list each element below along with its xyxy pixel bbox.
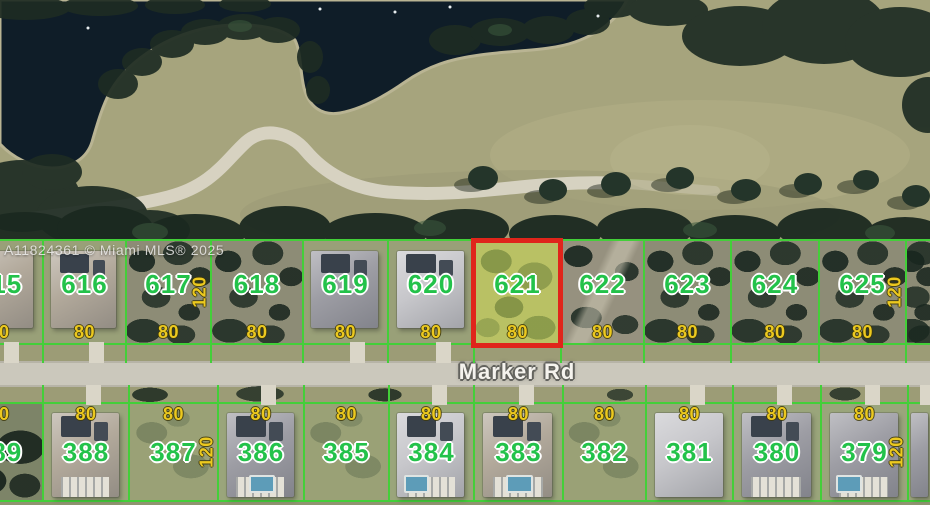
lot-number: 616	[44, 269, 125, 300]
lot-number: 386	[219, 437, 303, 468]
mls-watermark: A11824361 © Miami MLS® 2025	[4, 242, 224, 258]
lot-frontage: 80	[732, 322, 818, 343]
lot-number: 615	[0, 269, 42, 300]
lot-number: 388	[44, 437, 128, 468]
house	[911, 413, 928, 497]
lot-frontage: 80	[130, 404, 217, 425]
lot-number: 620	[389, 269, 473, 300]
driveway	[89, 342, 104, 363]
lot-frontage: 80	[389, 322, 473, 343]
lot-edge	[907, 404, 930, 500]
driveway	[261, 385, 276, 405]
aerial-map: Marker Rd 615806168061780120618806198062…	[0, 0, 930, 505]
lot-383: 38380	[473, 404, 562, 500]
lot-621: 62180	[473, 241, 560, 343]
lot-622: 62280	[560, 241, 643, 343]
lot-frontage: 80	[44, 404, 128, 425]
lot-depth: 120	[197, 436, 218, 468]
lot-frontage: 80	[219, 404, 303, 425]
driveway	[4, 342, 19, 363]
lot-frontage: 80	[734, 404, 820, 425]
lot-frontage: 80	[212, 322, 302, 343]
scenery-aerial	[0, 0, 930, 242]
lot-frontage: 80	[475, 404, 562, 425]
lot-number: 622	[562, 269, 643, 300]
lot-frontage: 80	[820, 322, 905, 343]
lot-number: 383	[475, 437, 562, 468]
lot-frontage: 80	[645, 322, 730, 343]
pool	[506, 475, 532, 493]
lot-619: 61980	[302, 241, 387, 343]
lot-number: 624	[732, 269, 818, 300]
lot-385: 38580	[303, 404, 388, 500]
road-name-label: Marker Rd	[104, 359, 930, 385]
lot-381: 38180	[645, 404, 732, 500]
pool	[404, 475, 429, 493]
lot-382: 38280	[562, 404, 645, 500]
lot-frontage: 80	[564, 404, 645, 425]
lot-number: 385	[305, 437, 388, 468]
lanai	[751, 477, 801, 497]
lot-624: 62480	[730, 241, 818, 343]
lot-number: 380	[734, 437, 820, 468]
lot-frontage: 80	[44, 322, 125, 343]
lot-379: 37980120	[820, 404, 907, 500]
lot-384: 38480	[388, 404, 473, 500]
lot-frontage: 80	[127, 322, 210, 343]
lot-number: 619	[304, 269, 387, 300]
lot-frontage: 80	[305, 404, 388, 425]
lot-386: 38680	[217, 404, 303, 500]
driveway	[519, 385, 534, 405]
pool	[249, 475, 275, 493]
driveway	[86, 385, 101, 405]
lot-number: 389	[0, 437, 42, 468]
driveway	[777, 385, 792, 405]
lanai	[61, 477, 109, 497]
lot-389: 38980	[0, 404, 42, 500]
lot-frontage: 80	[390, 404, 473, 425]
lot-number: 623	[645, 269, 730, 300]
driveway	[436, 342, 451, 363]
driveway	[350, 342, 365, 363]
lot-depth: 120	[885, 276, 906, 308]
lot-edge	[905, 241, 930, 343]
lot-frontage: 80	[0, 404, 42, 425]
lot-625: 62580120	[818, 241, 905, 343]
lot-number: 384	[390, 437, 473, 468]
driveway	[432, 385, 447, 405]
lot-frontage: 80	[475, 322, 560, 343]
lot-380: 38080	[732, 404, 820, 500]
driveway	[920, 385, 930, 405]
lot-frontage: 80	[304, 322, 387, 343]
lot-623: 62380	[643, 241, 730, 343]
lot-number: 382	[564, 437, 645, 468]
lot-frontage: 80	[822, 404, 907, 425]
lot-depth: 120	[190, 276, 211, 308]
lot-388: 38880	[42, 404, 128, 500]
lot-number: 618	[212, 269, 302, 300]
lot-387: 38780120	[128, 404, 217, 500]
driveway	[865, 385, 880, 405]
driveway	[690, 385, 705, 405]
lot-depth: 120	[887, 436, 908, 468]
lot-number: 621	[475, 269, 560, 300]
lot-number: 381	[647, 437, 732, 468]
pool	[836, 475, 862, 493]
lot-frontage: 80	[647, 404, 732, 425]
lot-frontage: 80	[0, 322, 42, 343]
lot-frontage: 80	[562, 322, 643, 343]
lot-row-bottom: 3898038880387801203868038580384803838038…	[0, 402, 930, 502]
lot-620: 62080	[387, 241, 473, 343]
